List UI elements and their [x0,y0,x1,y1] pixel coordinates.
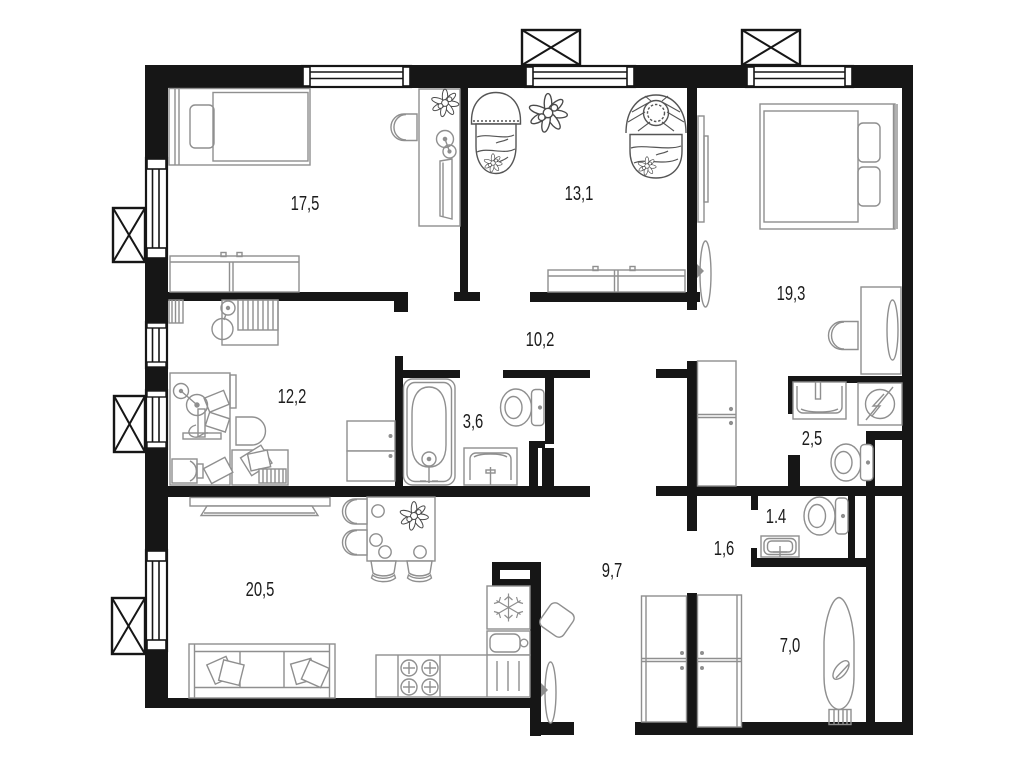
svg-text:3,6: 3,6 [463,410,484,433]
svg-text:10,2: 10,2 [526,328,555,351]
svg-text:17,5: 17,5 [291,192,320,215]
svg-text:13,1: 13,1 [565,182,594,205]
svg-text:20,5: 20,5 [246,578,275,601]
svg-text:12,2: 12,2 [278,385,307,408]
svg-text:19,3: 19,3 [777,282,806,305]
svg-text:7,0: 7,0 [780,634,801,657]
svg-text:2,5: 2,5 [802,427,823,450]
svg-text:1,6: 1,6 [714,537,735,560]
svg-text:1.4: 1.4 [766,505,787,528]
svg-text:9,7: 9,7 [602,559,623,582]
